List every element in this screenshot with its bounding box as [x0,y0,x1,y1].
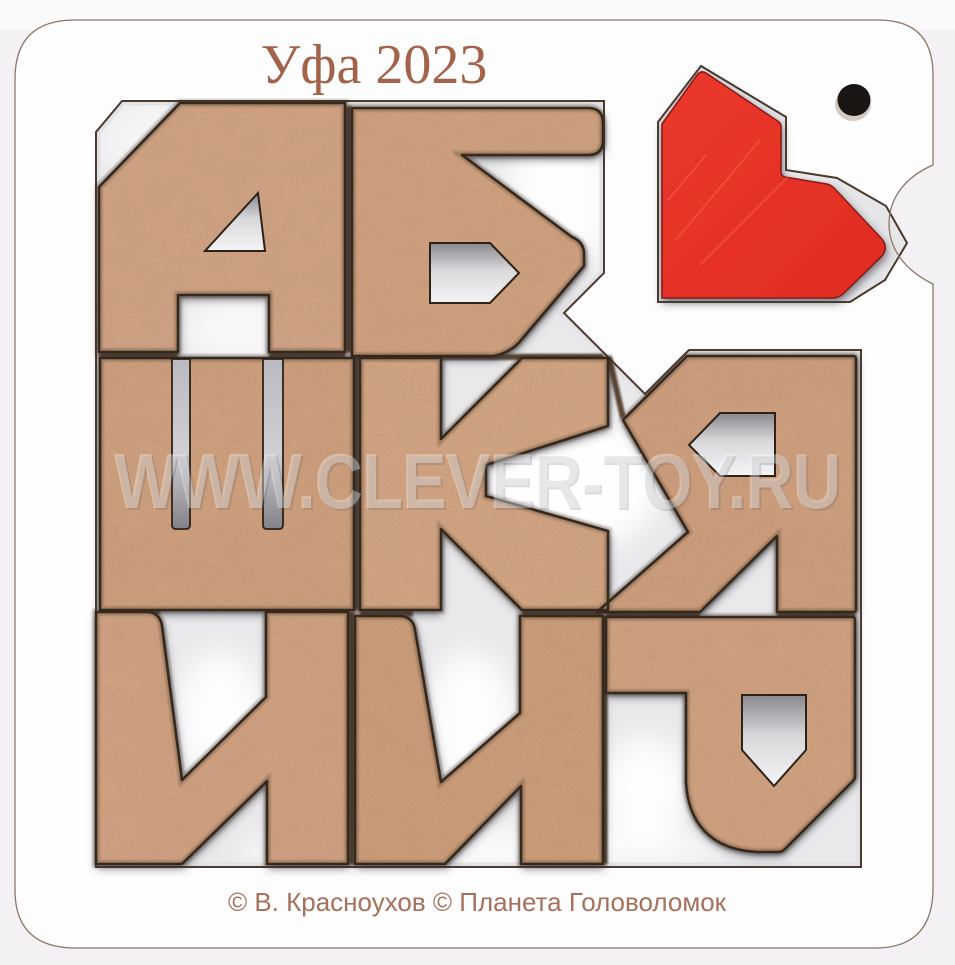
svg-text:© В. Красноухов © Планета Г: © В. Красноухов © Планета Головоломок [228,887,727,917]
svg-text:WWW.CLEVER-TOY.RU: WWW.CLEVER-TOY.RU [114,438,840,525]
svg-text:Уфа 2023: Уфа 2023 [261,34,488,96]
